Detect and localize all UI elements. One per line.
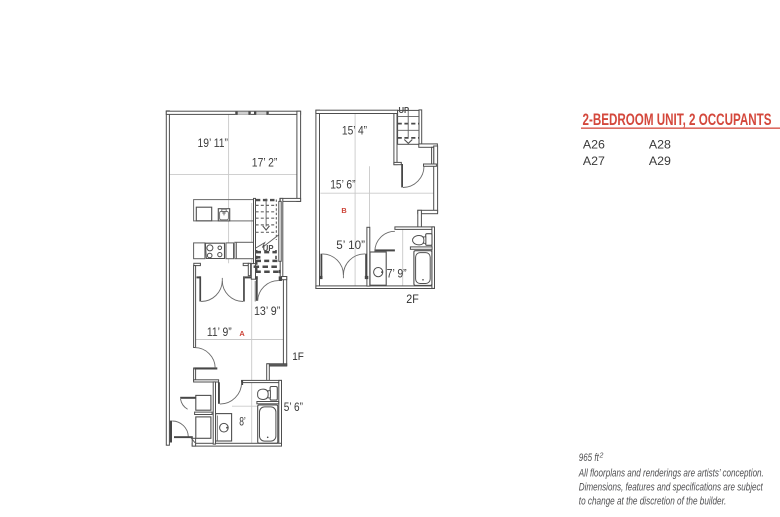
svg-text:5’ 6”: 5’ 6” xyxy=(284,401,303,414)
svg-text:A26: A26 xyxy=(583,138,605,152)
svg-text:2-BEDROOM UNIT, 2 OCCUPANTS: 2-BEDROOM UNIT, 2 OCCUPANTS xyxy=(583,111,772,129)
svg-text:A27: A27 xyxy=(583,154,605,168)
svg-text:965 ft: 965 ft xyxy=(579,452,600,464)
svg-text:A29: A29 xyxy=(649,154,671,168)
svg-text:5’ 10”: 5’ 10” xyxy=(336,239,365,252)
svg-text:Dimensions, features and speci: Dimensions, features and specifications … xyxy=(579,482,764,494)
svg-text:13’ 9”: 13’ 9” xyxy=(254,305,280,318)
svg-text:A28: A28 xyxy=(649,138,671,152)
svg-text:7’ 9”: 7’ 9” xyxy=(387,267,407,280)
svg-text:15’ 6”: 15’ 6” xyxy=(330,179,355,192)
svg-text:B: B xyxy=(341,206,346,215)
svg-text:2: 2 xyxy=(599,452,604,459)
svg-text:11’ 9”: 11’ 9” xyxy=(207,326,232,339)
svg-text:UP: UP xyxy=(399,105,410,115)
svg-text:A: A xyxy=(239,329,245,338)
svg-text:19’ 11”: 19’ 11” xyxy=(198,137,229,150)
svg-text:15’ 4”: 15’ 4” xyxy=(342,125,367,138)
svg-text:All floorplans and renderings: All floorplans and renderings are artist… xyxy=(578,467,764,479)
svg-text:8’: 8’ xyxy=(239,416,246,429)
svg-text:2F: 2F xyxy=(406,292,419,306)
svg-text:1F: 1F xyxy=(292,351,304,363)
svg-text:17’ 2”: 17’ 2” xyxy=(252,156,278,169)
svg-text:to change at the discretion of: to change at the discretion of the build… xyxy=(579,496,727,508)
